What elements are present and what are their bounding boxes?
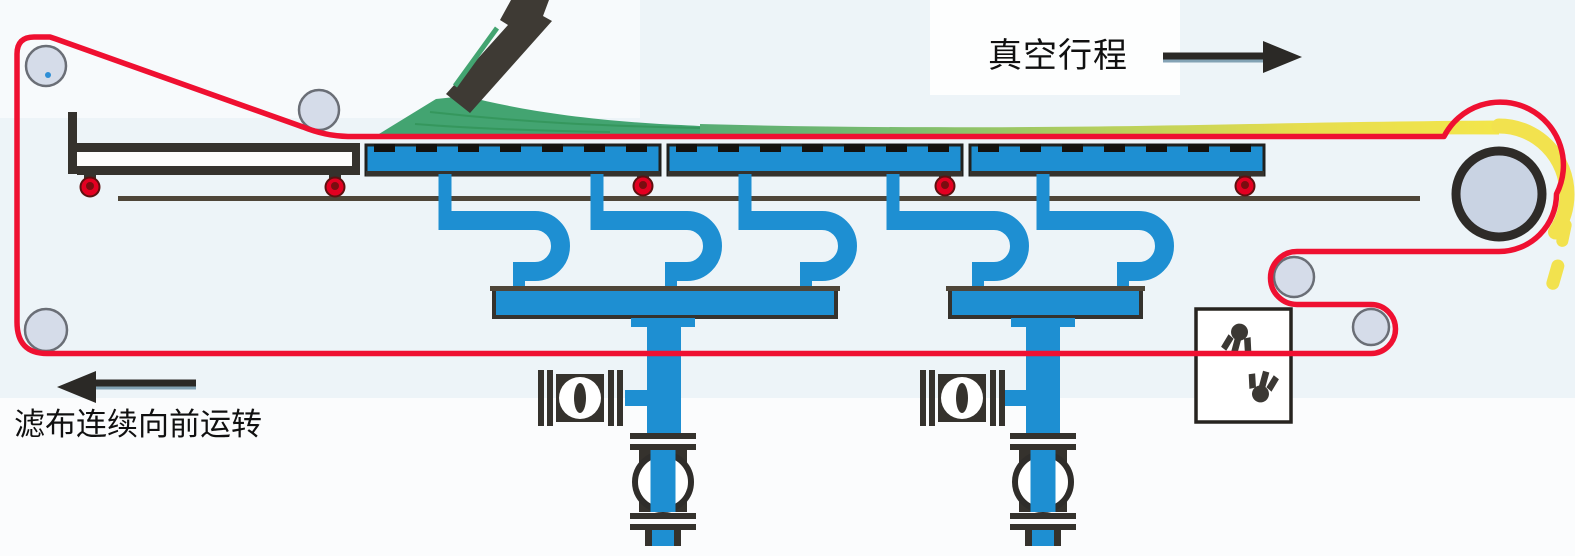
roller-axle-dot <box>45 72 51 78</box>
support-rail <box>118 196 1420 201</box>
downcomer-pipe-1 <box>647 318 681 436</box>
inline-valve-1 <box>630 433 696 546</box>
return-roller-right-upper <box>1274 257 1314 297</box>
valve-disc-icon <box>574 383 586 413</box>
drive-drum <box>1456 151 1542 237</box>
valve-disc-icon <box>956 383 968 413</box>
cloth-forward-label: 滤布连续向前运转 <box>14 407 262 442</box>
inline-valve-2 <box>1010 433 1076 546</box>
tension-roller-top-left <box>26 46 66 86</box>
vacuum-box-1 <box>366 145 660 176</box>
vacuum-belt-filter-diagram: 真空行程 滤布连续向前运转 <box>0 0 1575 556</box>
diagram-svg: 真空行程 滤布连续向前运转 <box>0 0 1575 556</box>
return-roller-bottom-left <box>25 309 67 351</box>
press-roller <box>299 90 339 130</box>
return-roller-right-lower <box>1353 309 1389 345</box>
vacuum-stroke-label: 真空行程 <box>988 37 1128 75</box>
vacuum-box-2 <box>668 145 962 176</box>
spray-wash-box <box>1196 309 1291 422</box>
downcomer-pipe-2 <box>1026 318 1060 436</box>
vacuum-box-3 <box>970 145 1264 176</box>
